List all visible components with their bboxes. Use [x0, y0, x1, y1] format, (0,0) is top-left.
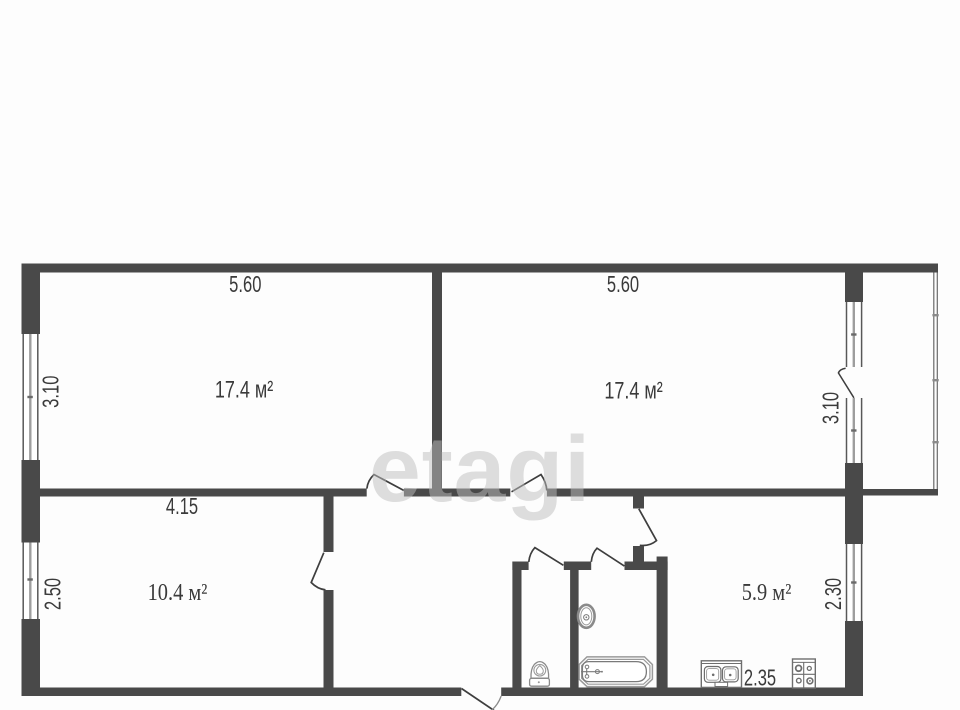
svg-text:17.4 м²: 17.4 м²	[604, 378, 662, 404]
svg-text:2.35: 2.35	[744, 666, 776, 691]
svg-text:5.9 м²: 5.9 м²	[742, 578, 792, 605]
svg-text:3.10: 3.10	[39, 376, 64, 408]
svg-text:4.15: 4.15	[166, 494, 198, 519]
svg-text:5.60: 5.60	[607, 272, 639, 297]
svg-text:17.4 м²: 17.4 м²	[215, 377, 273, 403]
svg-text:2.30: 2.30	[821, 578, 846, 610]
svg-text:etagi: etagi	[369, 417, 591, 521]
svg-text:5.60: 5.60	[229, 272, 261, 297]
svg-text:3.10: 3.10	[819, 392, 844, 424]
svg-text:10.4 м²: 10.4 м²	[148, 578, 208, 605]
svg-text:2.50: 2.50	[41, 578, 66, 610]
